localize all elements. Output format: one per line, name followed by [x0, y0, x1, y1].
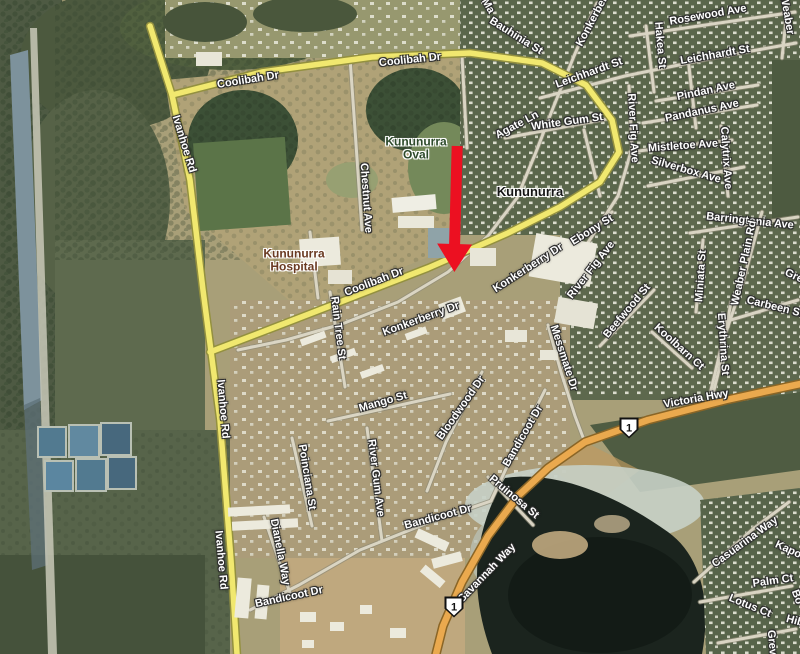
ponds [38, 423, 136, 491]
satellite-map[interactable]: Coolibah DrCoolibah DrCoolibah DrIvanhoe… [0, 0, 800, 654]
satellite-terrain [0, 0, 800, 654]
